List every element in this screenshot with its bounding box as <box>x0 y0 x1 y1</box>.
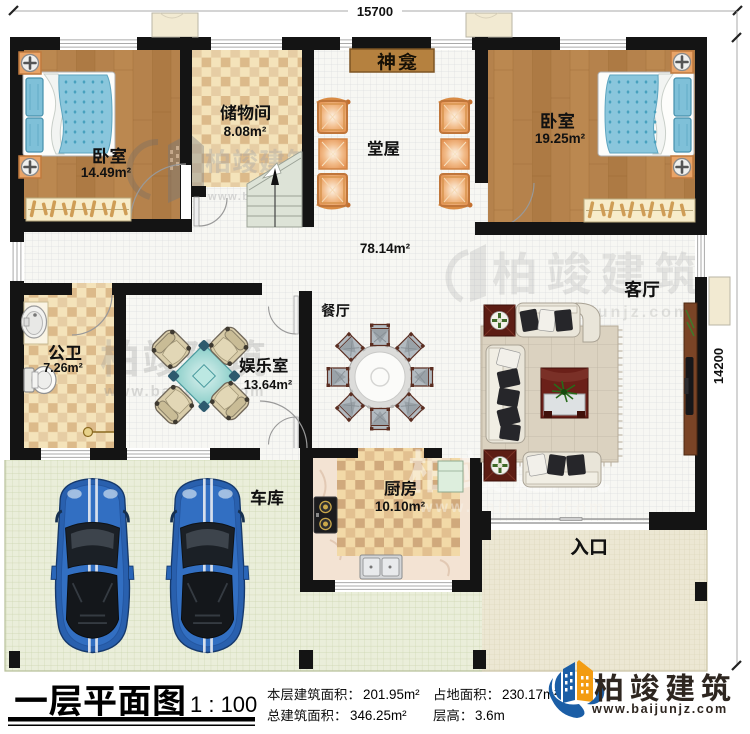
svg-text:346.25m²: 346.25m² <box>350 708 407 723</box>
svg-text:1 : 100: 1 : 100 <box>190 692 257 717</box>
svg-text:3.6m: 3.6m <box>475 708 505 723</box>
svg-text:www.baijunjz.com: www.baijunjz.com <box>591 702 728 716</box>
svg-text:14.49m²: 14.49m² <box>81 165 132 180</box>
svg-text:13.64m²: 13.64m² <box>244 377 293 392</box>
svg-text:14200: 14200 <box>711 348 726 384</box>
svg-text:19.25m²: 19.25m² <box>535 131 586 146</box>
svg-text:78.14m²: 78.14m² <box>360 241 411 256</box>
svg-text:201.95m²: 201.95m² <box>363 687 420 702</box>
svg-text:7.26m²: 7.26m² <box>43 361 83 375</box>
svg-text:www.baijunjz.com: www.baijunjz.com <box>419 499 606 516</box>
svg-text:15700: 15700 <box>357 4 393 19</box>
svg-text:10.10m²: 10.10m² <box>375 499 426 514</box>
svg-text:8.08m²: 8.08m² <box>224 124 267 139</box>
